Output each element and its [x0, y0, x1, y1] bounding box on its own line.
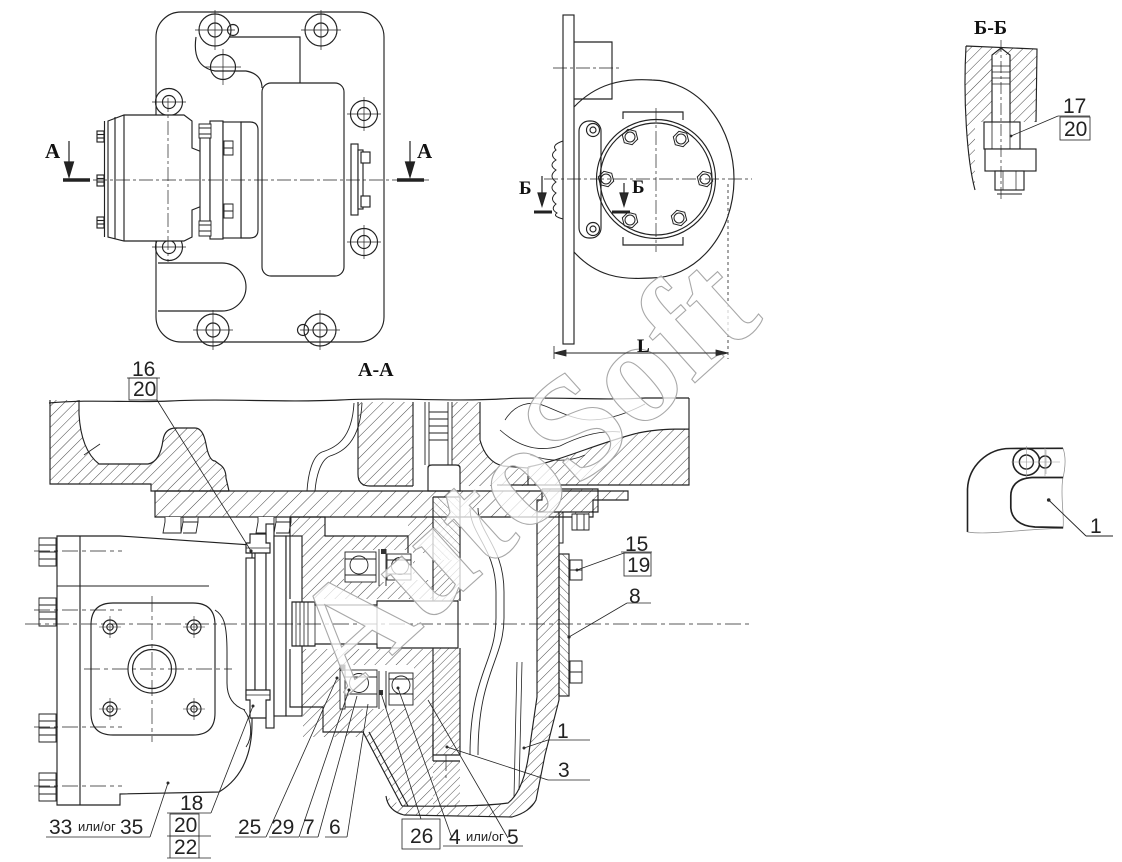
svg-text:1: 1 — [1090, 515, 1102, 538]
svg-text:5: 5 — [507, 826, 519, 849]
svg-text:29: 29 — [271, 816, 294, 839]
svg-text:Б: Б — [632, 177, 645, 198]
svg-text:Б: Б — [519, 178, 532, 199]
svg-text:A: A — [417, 139, 433, 163]
svg-text:3: 3 — [558, 759, 570, 782]
svg-text:A: A — [45, 139, 61, 163]
svg-text:6: 6 — [329, 816, 341, 839]
svg-text:15: 15 — [625, 533, 648, 556]
svg-text:8: 8 — [629, 585, 641, 608]
svg-text:26: 26 — [410, 825, 433, 848]
svg-text:или/ог: или/ог — [78, 819, 116, 834]
svg-text:4: 4 — [449, 826, 461, 849]
svg-text:Б-Б: Б-Б — [974, 17, 1007, 39]
svg-text:20: 20 — [1064, 118, 1087, 141]
svg-text:17: 17 — [1063, 95, 1086, 118]
svg-text:1: 1 — [557, 720, 569, 743]
svg-text:19: 19 — [627, 554, 650, 577]
svg-text:или/ог: или/ог — [466, 829, 504, 844]
svg-text:35: 35 — [120, 816, 143, 839]
svg-text:L: L — [637, 336, 650, 357]
svg-text:20: 20 — [174, 814, 197, 837]
svg-text:A-A: A-A — [358, 359, 394, 381]
svg-text:18: 18 — [180, 792, 203, 815]
svg-text:20: 20 — [133, 378, 156, 401]
svg-text:25: 25 — [238, 816, 261, 839]
svg-text:33: 33 — [49, 816, 72, 839]
svg-text:22: 22 — [174, 836, 197, 859]
svg-text:AutoSoft: AutoSoft — [258, 223, 786, 721]
